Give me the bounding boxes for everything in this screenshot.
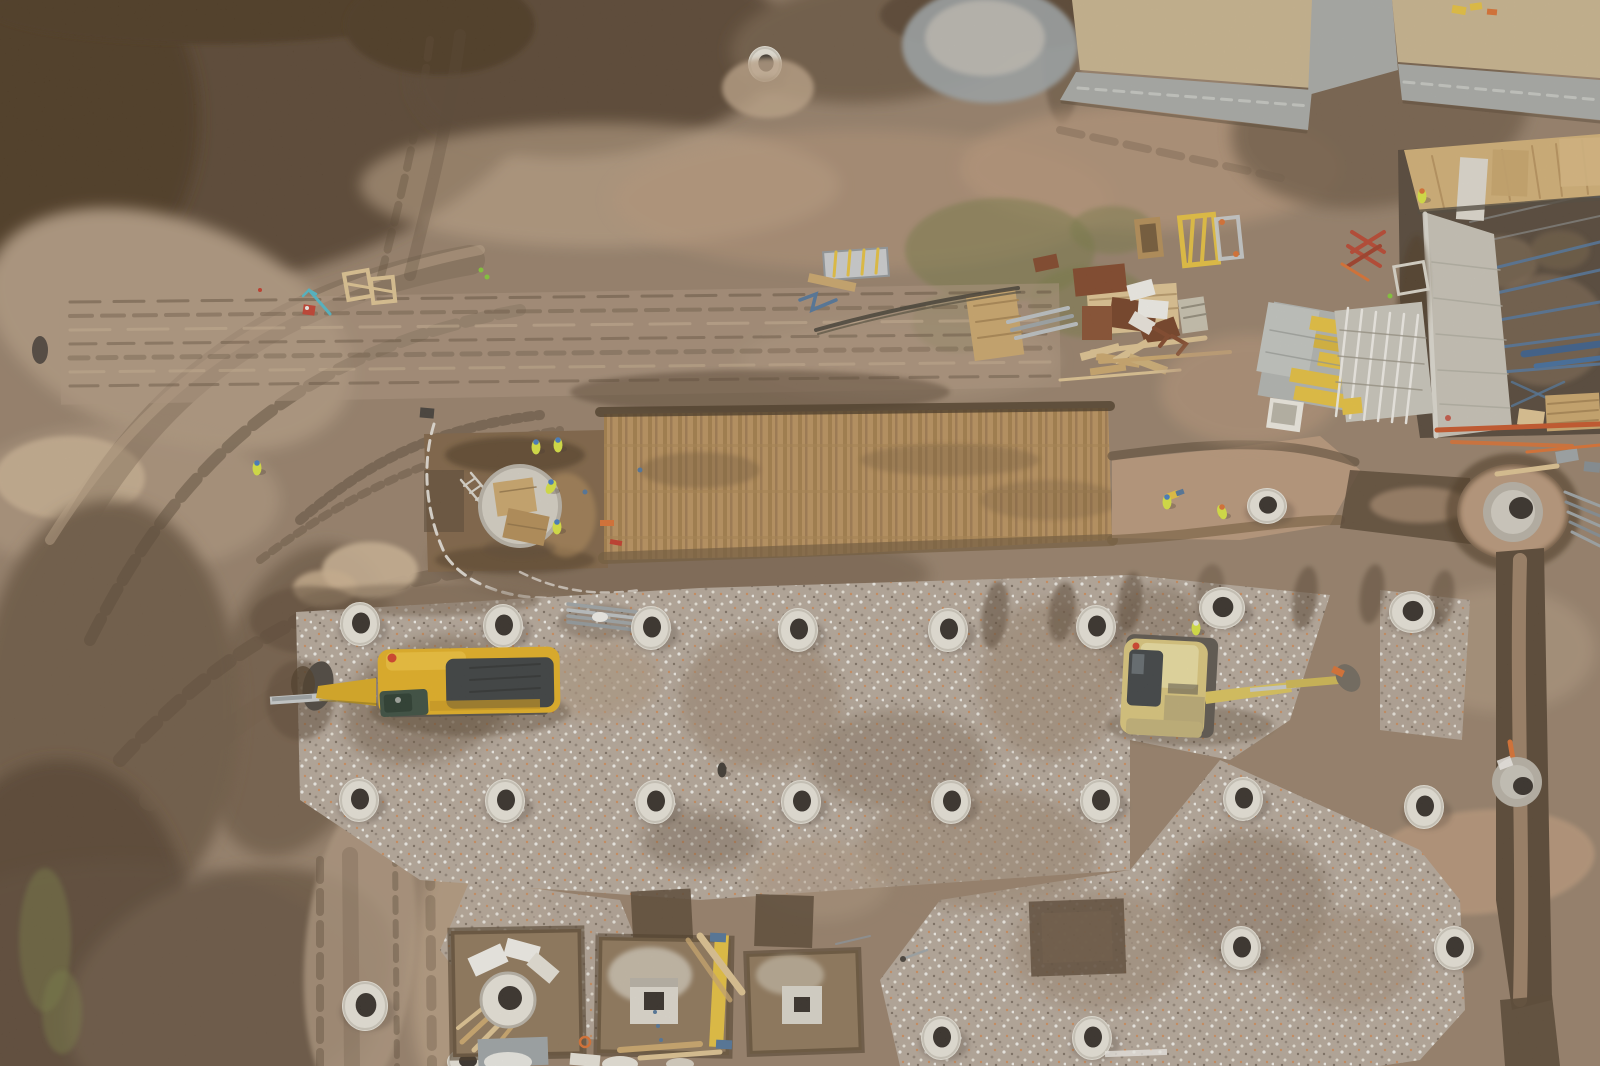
scene-canvas bbox=[0, 0, 1600, 1066]
film-grain-overlay bbox=[0, 0, 1600, 1066]
aerial-construction-site-photo bbox=[0, 0, 1600, 1066]
